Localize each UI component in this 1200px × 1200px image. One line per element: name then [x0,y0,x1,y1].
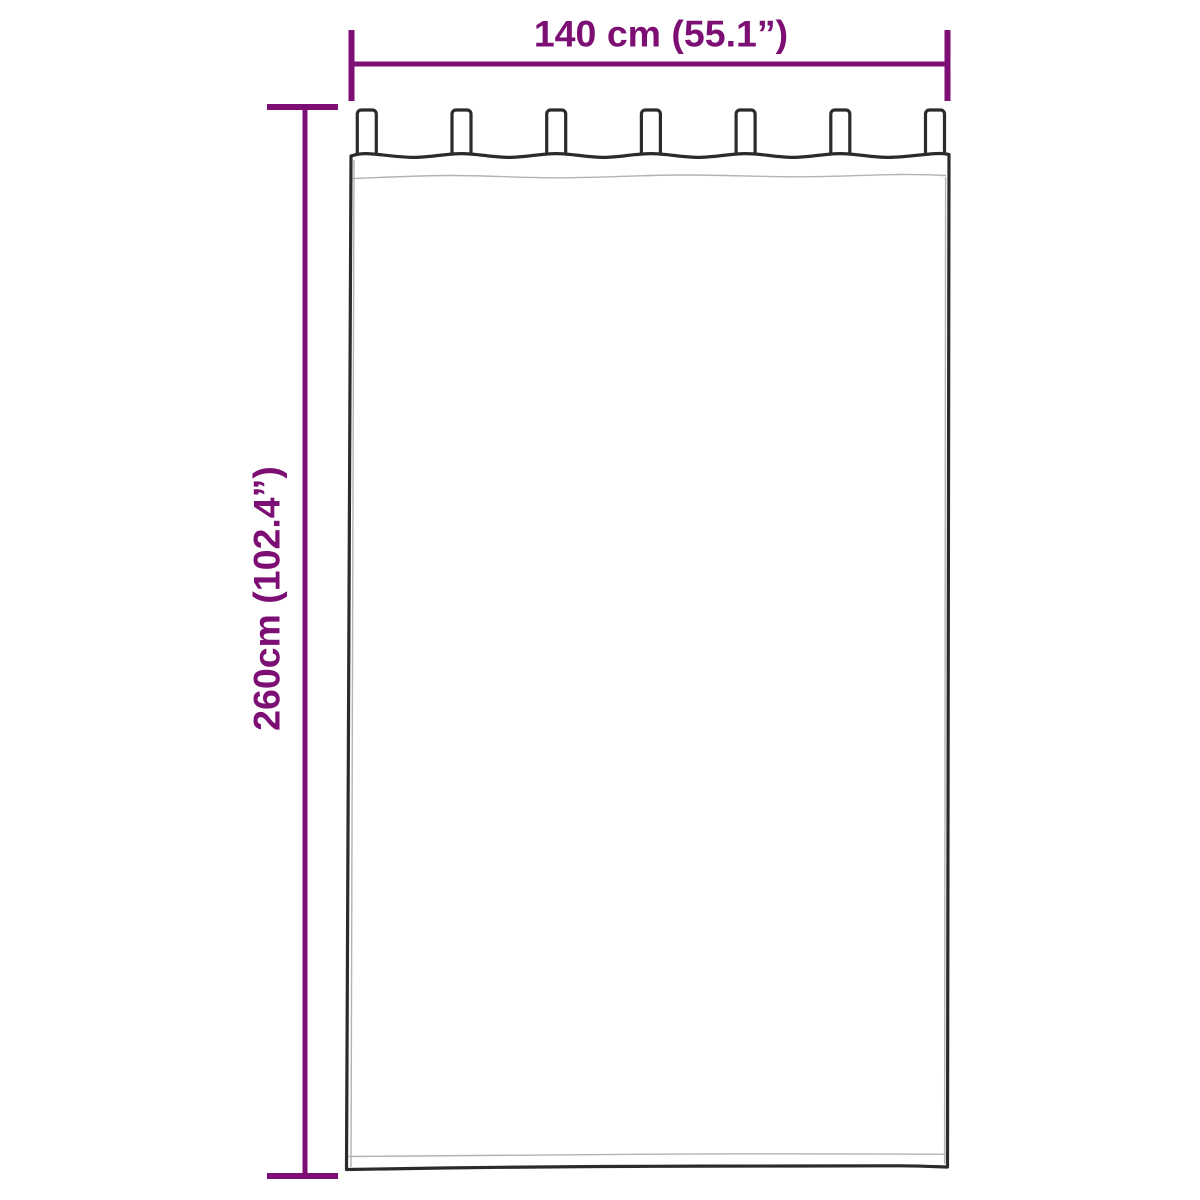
svg-text:260cm (102.4”): 260cm (102.4”) [246,466,288,731]
svg-text:140 cm (55.1”): 140 cm (55.1”) [534,13,788,55]
